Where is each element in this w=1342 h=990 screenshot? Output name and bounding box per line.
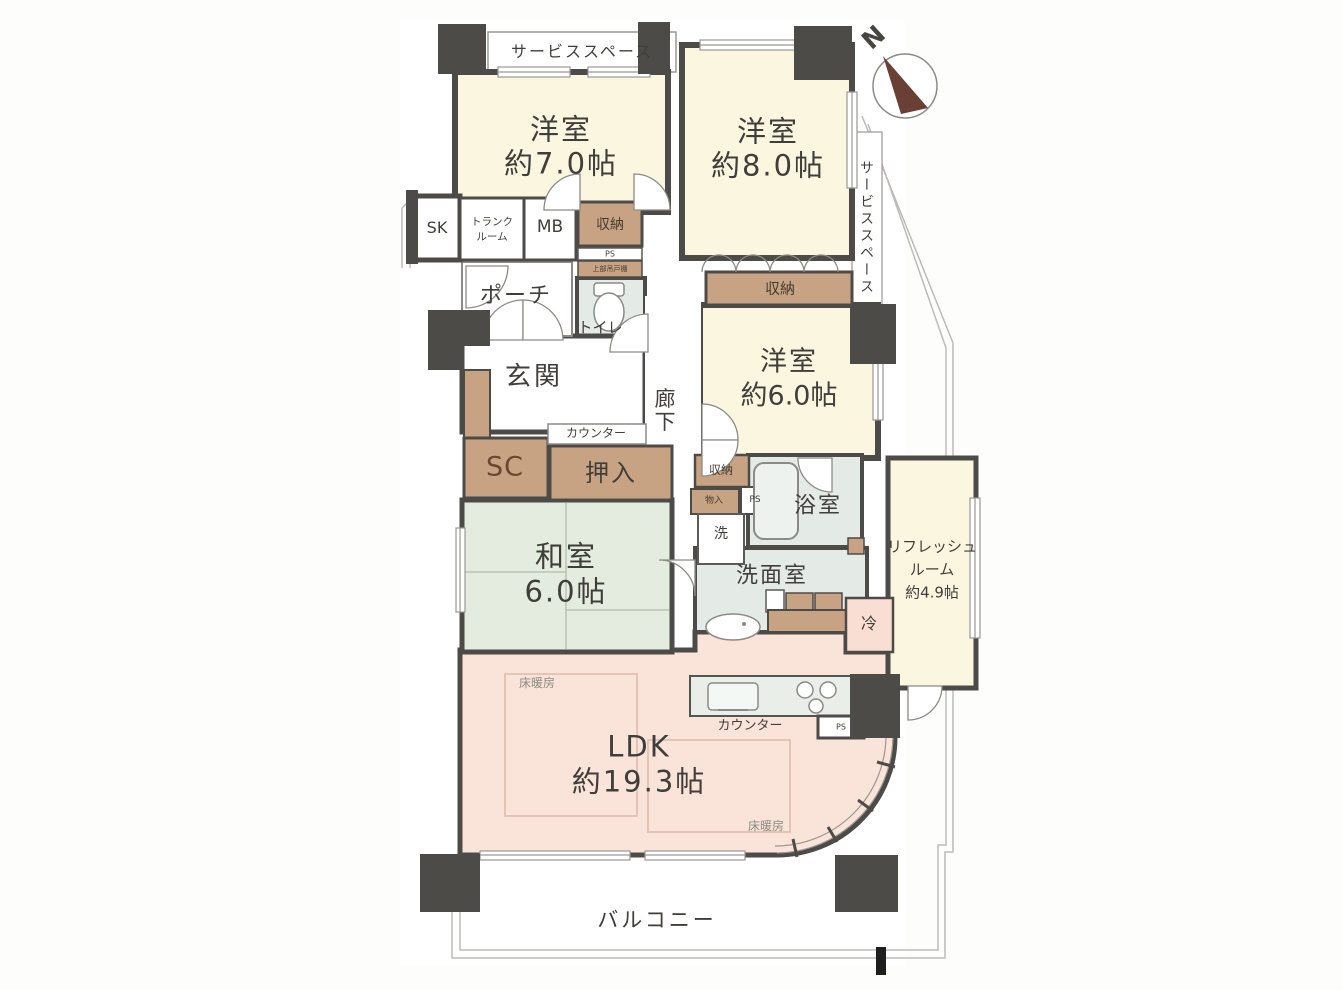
label-w1-size: 約7.0帖 (504, 147, 618, 180)
label-sk: SK (427, 219, 448, 237)
label-trunk-1: トランク (471, 216, 513, 228)
label-closet-w3: 収納 (709, 464, 733, 478)
label-floor-heat-1: 床暖房 (519, 677, 555, 691)
label-genkan: 玄関 (505, 363, 563, 393)
label-w3-size: 約6.0帖 (741, 380, 838, 411)
label-monoire: 物入 (705, 496, 723, 506)
label-refresh-1: リフレッシュ (887, 538, 977, 555)
label-bath: 浴室 (794, 493, 842, 518)
label-washitsu-size: 6.0帖 (524, 575, 607, 608)
label-refresh-3: 約4.9帖 (905, 584, 959, 601)
washroom-cabinet-small (766, 590, 784, 612)
wash-basin (706, 614, 760, 640)
label-porch: ポーチ (480, 283, 552, 308)
bath-shelf (848, 538, 864, 554)
washroom-counter (768, 610, 846, 632)
label-fridge: 冷 (861, 615, 877, 633)
label-service-top: サービススペース (511, 43, 653, 61)
label-w2-name: 洋室 (737, 115, 799, 148)
label-service-right: サービススペース (858, 160, 874, 296)
label-ldk-name: LDK (607, 730, 671, 763)
label-closet-mb: 収納 (596, 217, 624, 233)
label-mb: MB (537, 218, 563, 238)
room-ldk (460, 632, 895, 855)
label-sc: SC (486, 451, 524, 482)
label-closet-w2: 収納 (765, 280, 795, 297)
bathtub (754, 463, 798, 539)
label-w2-size: 約8.0帖 (711, 149, 825, 182)
label-ps-top: PS (605, 249, 615, 258)
label-refresh-2: ルーム (910, 561, 955, 578)
label-balcony: バルコニー (597, 908, 717, 932)
room-trunk (460, 198, 524, 260)
label-roka-2: 下 (655, 410, 676, 434)
label-hanging-cabinet: 上部吊戸棚 (593, 265, 628, 273)
compass (873, 54, 937, 118)
label-counter-genkan: カウンター (566, 427, 626, 441)
washroom-upper-2 (815, 593, 842, 610)
label-roka-1: 廊 (655, 387, 676, 411)
label-oshiire: 押入 (585, 460, 637, 488)
label-washitsu-name: 和室 (535, 540, 597, 573)
label-ldk-size: 約19.3帖 (572, 765, 707, 798)
label-w3-name: 洋室 (760, 346, 818, 377)
label-washroom: 洗面室 (736, 563, 808, 588)
label-floor-heat-2: 床暖房 (748, 820, 784, 834)
basin-faucet (742, 622, 746, 626)
label-w1-name: 洋室 (530, 113, 592, 146)
room-corridor (645, 296, 701, 466)
label-toilet: トイレ (577, 319, 622, 336)
label-ps-mid: PS (749, 495, 760, 505)
label-ps-kitchen: PS (836, 722, 846, 731)
label-counter-kitchen: カウンター (717, 720, 782, 735)
label-trunk-2: ルーム (476, 231, 507, 243)
floorplan: { "labels": { "compass_n": "N", "service… (0, 0, 1342, 990)
floorplan-canvas (0, 0, 1342, 990)
balcony-divider (876, 947, 886, 975)
kitchen-sink (708, 683, 758, 710)
genkan-storage (464, 370, 490, 438)
label-washer: 洗 (714, 526, 728, 542)
washroom-upper-1 (786, 593, 813, 610)
